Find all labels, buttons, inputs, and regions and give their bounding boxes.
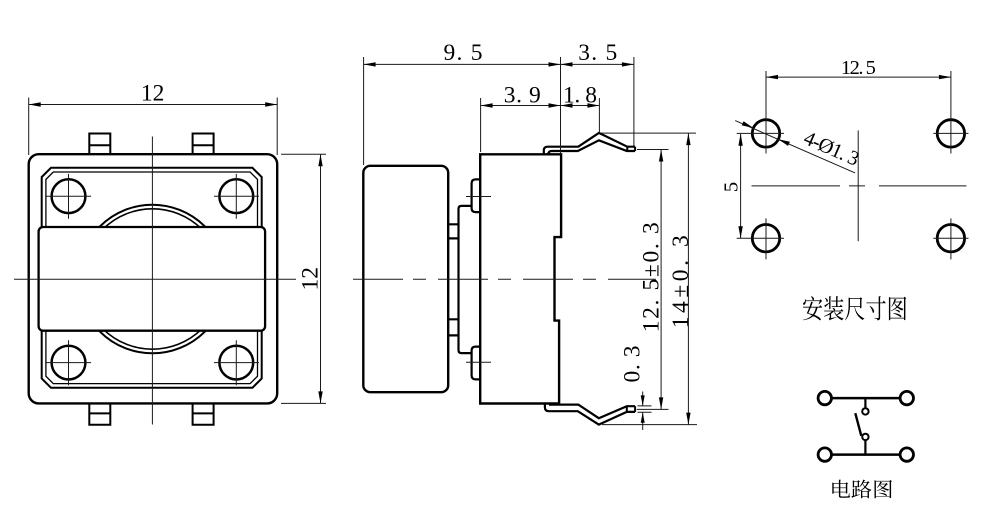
svg-text:0. 3: 0. 3 (620, 346, 646, 383)
svg-text:12: 12 (141, 80, 165, 106)
svg-text:12: 12 (298, 267, 324, 291)
svg-text:9. 5: 9. 5 (444, 40, 483, 66)
svg-text:5: 5 (720, 182, 742, 192)
svg-text:12. 5: 12. 5 (841, 57, 876, 79)
svg-text:1. 8: 1. 8 (563, 83, 597, 109)
svg-text:12. 5±0. 3: 12. 5±0. 3 (639, 222, 665, 332)
svg-text:3. 5: 3. 5 (578, 40, 617, 66)
svg-text:14±0. 3: 14±0. 3 (668, 235, 694, 328)
svg-text:3. 9: 3. 9 (504, 83, 541, 109)
svg-text:4-Ø1. 3: 4-Ø1. 3 (800, 127, 862, 170)
